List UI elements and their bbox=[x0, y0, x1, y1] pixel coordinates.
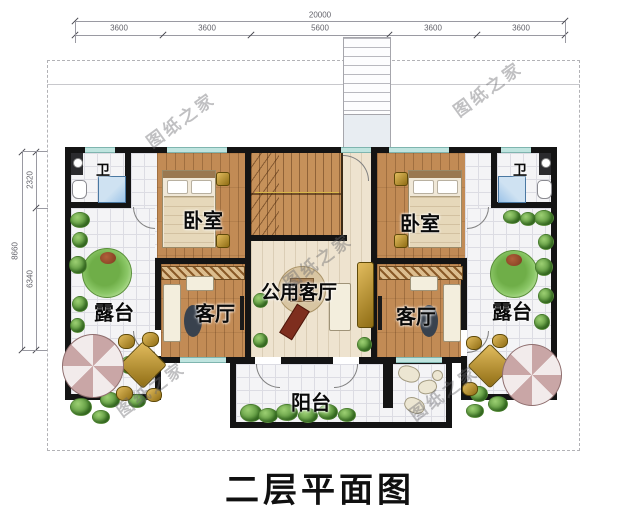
potted-plant bbox=[253, 333, 268, 348]
sofa bbox=[163, 284, 181, 342]
armchair bbox=[186, 276, 214, 291]
pillow bbox=[191, 180, 212, 194]
room-label-balcony: 阳台 bbox=[291, 387, 331, 416]
outdoor-chair bbox=[492, 334, 508, 348]
bush bbox=[72, 296, 88, 312]
bush bbox=[70, 318, 85, 333]
bush bbox=[70, 398, 92, 416]
wall-balcony-divider bbox=[383, 364, 393, 408]
shower bbox=[98, 176, 126, 203]
dim-left-segment: 2320 bbox=[26, 171, 35, 189]
armchair bbox=[410, 276, 438, 291]
display-cabinet bbox=[357, 262, 374, 328]
room-label-terrace-left: 露台 bbox=[94, 297, 134, 326]
pillow bbox=[437, 180, 458, 194]
tv-unit bbox=[378, 296, 382, 330]
exterior-stair-landing bbox=[343, 114, 391, 148]
window bbox=[180, 357, 226, 363]
dim-line bbox=[36, 152, 37, 350]
tree-core bbox=[506, 254, 522, 266]
stair-guide-line bbox=[255, 192, 339, 193]
nightstand bbox=[216, 172, 230, 186]
dim-line bbox=[75, 35, 565, 36]
room-label-bedroom-left: 卧室 bbox=[183, 205, 223, 234]
dim-top-segment: 3600 bbox=[198, 24, 216, 33]
toilet bbox=[72, 180, 87, 199]
door-opening bbox=[255, 357, 281, 364]
window bbox=[85, 147, 115, 153]
patio-umbrella bbox=[62, 334, 124, 398]
bush bbox=[538, 288, 554, 304]
exterior-stair bbox=[343, 37, 391, 115]
bush bbox=[69, 256, 87, 274]
stair-landing-edge bbox=[251, 193, 341, 195]
bush bbox=[503, 210, 521, 224]
dim-top-total: 20000 bbox=[309, 11, 331, 20]
room-label-living-right: 客厅 bbox=[396, 301, 436, 330]
patio-umbrella bbox=[502, 344, 562, 406]
dim-line bbox=[22, 152, 23, 350]
bush bbox=[466, 404, 484, 418]
nightstand bbox=[216, 234, 230, 248]
floor-plan-drawing: 20000 3600 3600 5600 3600 3600 8660 2320… bbox=[0, 0, 640, 515]
room-label-bathroom-right: 卫 bbox=[513, 160, 527, 180]
dim-extension-line bbox=[22, 151, 48, 152]
bush bbox=[534, 314, 550, 330]
bush bbox=[535, 258, 553, 276]
room-label-terrace-right: 露台 bbox=[492, 296, 532, 325]
tree-core bbox=[100, 252, 116, 264]
headboard bbox=[409, 171, 461, 178]
outdoor-chair bbox=[466, 336, 482, 350]
drawing-title: 二层平面图 bbox=[225, 463, 415, 512]
dim-extension-line bbox=[75, 21, 76, 43]
dim-top-segment: 3600 bbox=[424, 24, 442, 33]
door-opening bbox=[333, 357, 359, 364]
window bbox=[389, 147, 449, 153]
window bbox=[167, 147, 227, 153]
room-label-bedroom-right: 卧室 bbox=[400, 208, 440, 237]
dim-left-total: 8660 bbox=[11, 242, 20, 260]
bush bbox=[534, 210, 554, 226]
sink bbox=[541, 158, 551, 168]
bush bbox=[488, 396, 508, 412]
headboard bbox=[163, 171, 215, 178]
pillow bbox=[413, 180, 434, 194]
window bbox=[396, 357, 442, 363]
nightstand bbox=[394, 172, 408, 186]
interior-stairs bbox=[251, 153, 343, 235]
dim-top-segment: 5600 bbox=[311, 24, 329, 33]
bush bbox=[72, 232, 88, 248]
toilet bbox=[537, 180, 552, 199]
sink bbox=[73, 158, 83, 168]
bush bbox=[258, 408, 278, 423]
potted-plant bbox=[357, 337, 372, 352]
bush bbox=[538, 234, 554, 250]
bush bbox=[92, 410, 110, 424]
dim-top-segment: 3600 bbox=[110, 24, 128, 33]
dim-left-segment: 6340 bbox=[26, 270, 35, 288]
dim-line bbox=[75, 21, 565, 22]
room-label-living-left: 客厅 bbox=[195, 298, 235, 327]
bush bbox=[520, 212, 536, 226]
pillow bbox=[167, 180, 188, 194]
dim-top-segment: 3600 bbox=[512, 24, 530, 33]
dim-extension-line bbox=[22, 350, 48, 351]
outdoor-chair bbox=[118, 334, 135, 349]
tv-unit bbox=[240, 296, 244, 330]
bush bbox=[338, 408, 356, 422]
bush bbox=[70, 212, 90, 228]
outdoor-chair bbox=[142, 332, 159, 347]
shower bbox=[498, 176, 526, 203]
room-label-bathroom-left: 卫 bbox=[96, 160, 110, 180]
sofa bbox=[443, 284, 461, 342]
entry-door-glass bbox=[341, 147, 371, 153]
dim-extension-line bbox=[565, 21, 566, 43]
window bbox=[501, 147, 531, 153]
